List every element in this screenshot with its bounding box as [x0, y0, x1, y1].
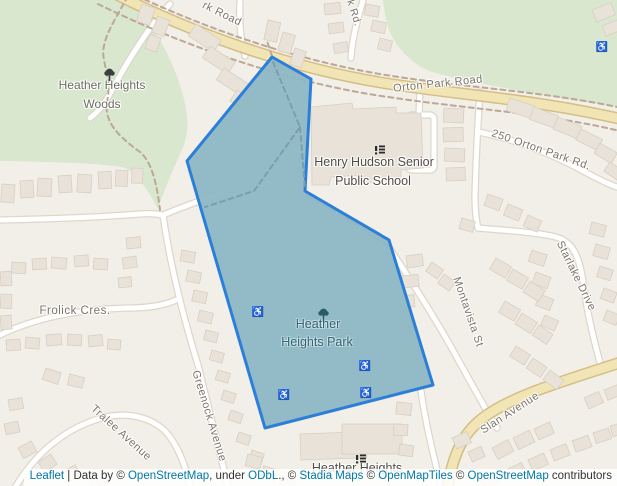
leaflet-link[interactable]: Leaflet: [30, 470, 65, 482]
stadia-maps-link[interactable]: Stadia Maps: [299, 470, 363, 482]
wheelchair-icon: ♿: [360, 389, 372, 399]
woods-label-line2: Woods: [83, 97, 120, 111]
attribution-text: ©: [453, 470, 468, 482]
wheelchair-icon: ♿: [359, 362, 371, 372]
wheelchair-icon: ♿: [252, 308, 264, 318]
frolick-cres-label: Frolick Cres.: [39, 305, 110, 317]
openstreetmap-link[interactable]: OpenStreetMap: [468, 470, 549, 482]
openstreetmap-link[interactable]: OpenStreetMap: [128, 470, 209, 482]
odbl-link[interactable]: ODbL: [248, 470, 278, 482]
attribution-text: | Data by ©: [64, 470, 128, 482]
attribution-text: contributors: [549, 470, 612, 482]
wheelchair-icon: ♿: [596, 43, 608, 53]
attribution-text: , under: [209, 470, 248, 482]
park-label-line2: Heights Park: [281, 335, 353, 349]
attribution-bar: Leaflet | Data by © OpenStreetMap, under…: [24, 469, 617, 486]
openmaptiles-link[interactable]: OpenMapTiles: [378, 470, 452, 482]
school-label-line1: Henry Hudson Senior: [314, 155, 434, 169]
woods-label-line1: Heather Heights: [59, 78, 146, 92]
school-label-line2: Public School: [335, 174, 411, 188]
wheelchair-icon: ♿: [278, 391, 290, 401]
school-building: [311, 103, 423, 185]
attribution-text: ©: [363, 470, 378, 482]
map-canvas[interactable]: Heather Heights Woods rk Road k Rd. Orto…: [0, 0, 617, 486]
attribution-text: ., ©: [278, 470, 299, 482]
